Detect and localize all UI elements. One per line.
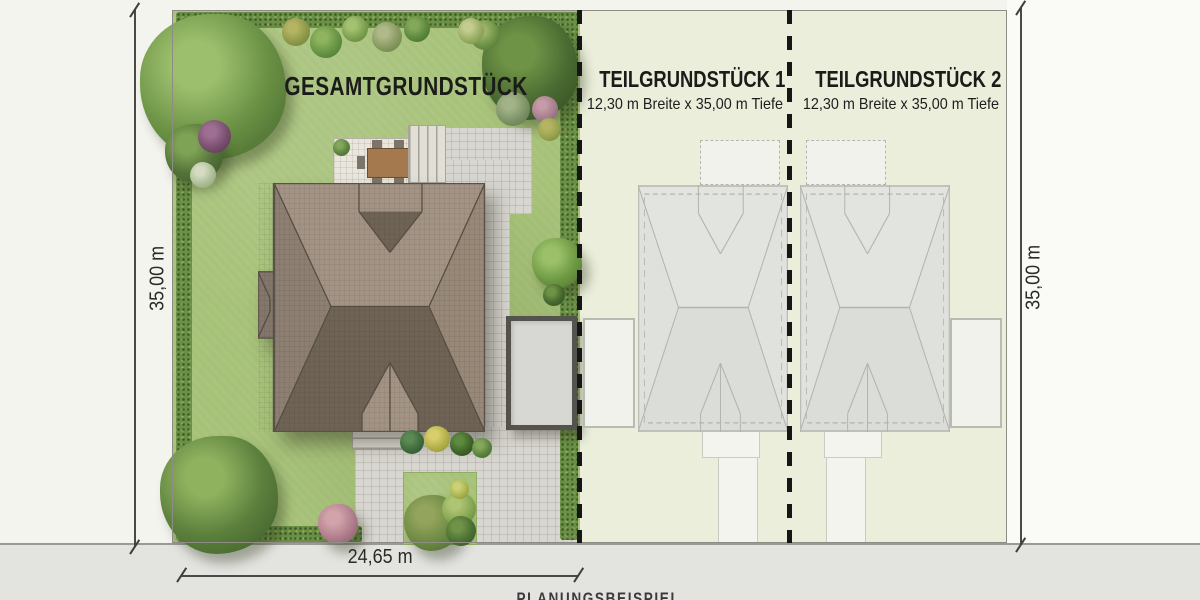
white-bush: [190, 162, 216, 188]
ghost-house-2: [800, 185, 950, 432]
bush: [446, 516, 476, 546]
ghost-house-1: [638, 185, 788, 432]
dining-table: [367, 148, 410, 178]
flower-bed-bush: [472, 438, 492, 458]
chair: [372, 140, 382, 148]
site-plan: 35,00 m 35,00 m 24,65 m GESAMTGRUNDSTÜCK…: [0, 0, 1200, 600]
bush: [538, 118, 561, 141]
ghost-terrace-2: [806, 140, 886, 185]
ghost-walkway-1: [718, 457, 758, 543]
chair: [394, 140, 404, 148]
flower-bed-bush: [424, 426, 450, 452]
dimension-line-left: [134, 10, 136, 547]
purple-bush: [198, 120, 231, 153]
plot1-label: TEILGRUNDSTÜCK 1 12,30 m Breite x 35,00 …: [576, 66, 792, 114]
bush: [342, 16, 368, 42]
garage: [506, 316, 577, 430]
chair: [357, 156, 365, 169]
tree: [160, 436, 278, 554]
bush: [282, 18, 310, 46]
ghost-terrace-1: [700, 140, 780, 185]
bush: [404, 16, 430, 42]
ghost-garage-1: [583, 318, 635, 428]
dimension-label-bottom: 24,65 m: [320, 546, 440, 569]
garden-stairs: [408, 125, 446, 183]
bush: [310, 26, 342, 58]
tree: [532, 238, 582, 288]
ghost-garage-2: [950, 318, 1002, 428]
pink-bush: [318, 504, 358, 544]
bush: [450, 480, 469, 499]
dimension-line-right: [1020, 8, 1022, 545]
flower-bed-bush: [400, 430, 424, 454]
cutoff-caption: PLANUNGSBEISPIEL: [488, 591, 708, 600]
bush: [458, 18, 484, 44]
main-house: [258, 183, 485, 432]
ghost-walkway-2: [826, 457, 866, 543]
bush: [372, 22, 402, 52]
flower-bed-bush: [450, 432, 474, 456]
dimension-line-bottom: [181, 575, 578, 577]
bush: [543, 284, 565, 306]
bush: [333, 139, 350, 156]
ghost-porch-1: [702, 430, 760, 458]
plot2-label: TEILGRUNDSTÜCK 2 12,30 m Breite x 35,00 …: [792, 66, 1008, 114]
main-plot-label: GESAMTGRUNDSTÜCK: [254, 71, 534, 102]
ghost-porch-2: [824, 430, 882, 458]
dimension-label-right: 35,00 m: [1023, 233, 1046, 323]
dimension-label-left: 35,00 m: [147, 234, 170, 324]
